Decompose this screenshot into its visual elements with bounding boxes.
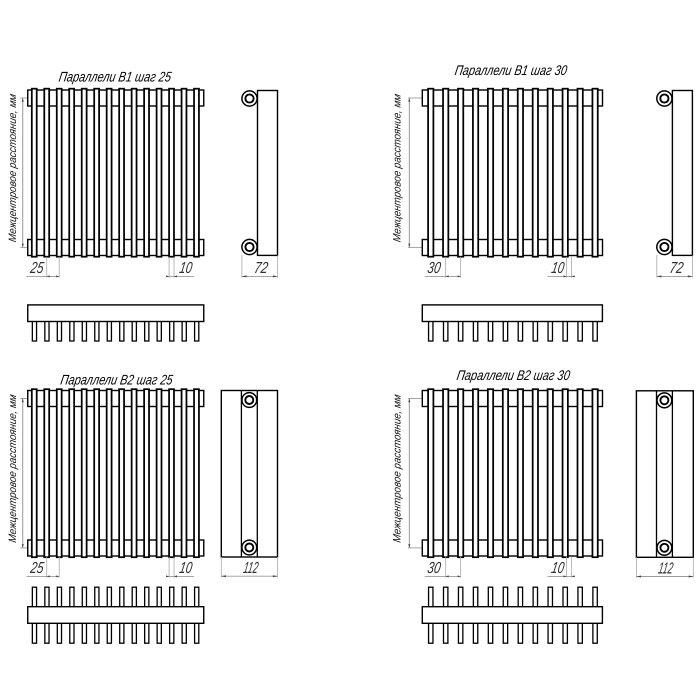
svg-text:Параллели В2 шаг 30: Параллели В2 шаг 30 [456, 367, 572, 383]
svg-text:Параллели В1 шаг 25: Параллели В1 шаг 25 [58, 68, 173, 84]
svg-text:Межцентровое расстояние, мм: Межцентровое расстояние, мм [391, 92, 403, 243]
svg-text:Параллели В1 шаг 30: Параллели В1 шаг 30 [454, 62, 569, 78]
svg-text:Межцентровое расстояние, мм: Межцентровое расстояние, мм [7, 393, 19, 544]
svg-text:Параллели В2 шаг 25: Параллели В2 шаг 25 [59, 372, 174, 388]
svg-text:Межцентровое расстояние, мм: Межцентровое расстояние, мм [391, 393, 403, 544]
svg-text:Межцентровое расстояние, мм: Межцентровое расстояние, мм [7, 92, 19, 243]
